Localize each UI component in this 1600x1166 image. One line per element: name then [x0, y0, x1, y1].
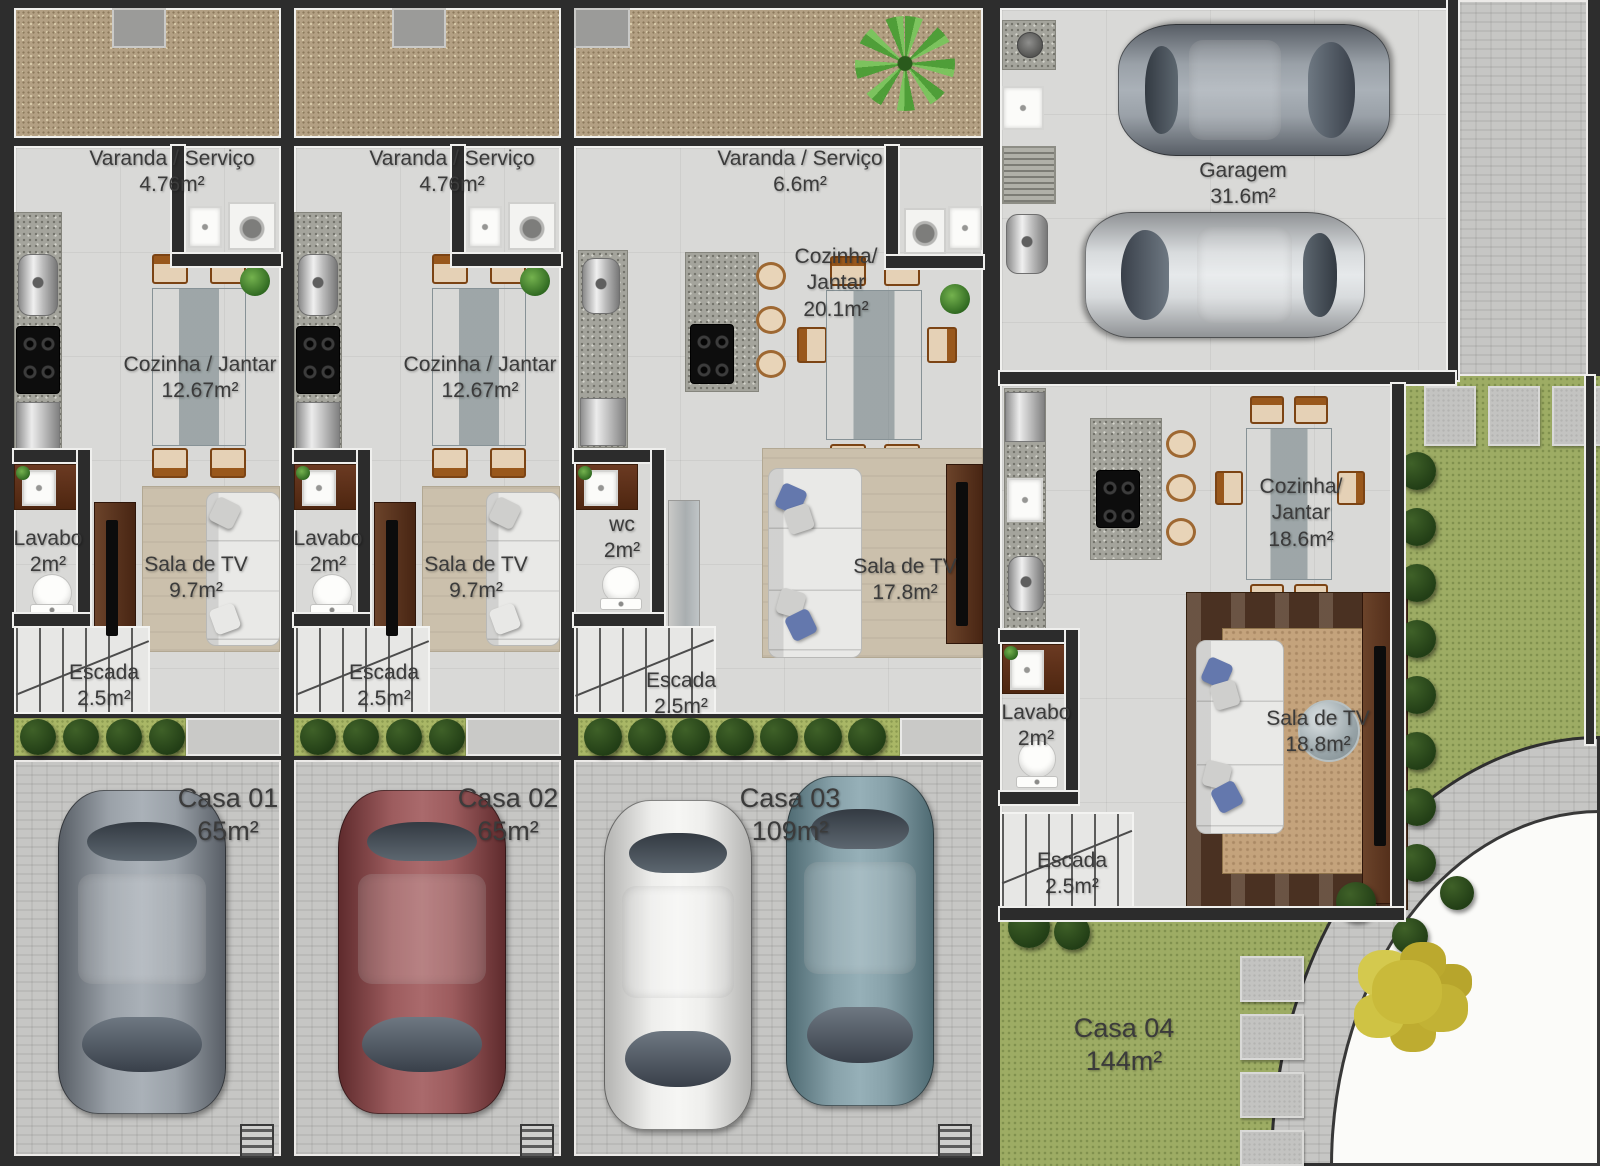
room-name: Varanda / Serviço: [369, 146, 534, 172]
car-windshield: [82, 1017, 203, 1072]
room-name: Lavabo: [294, 526, 363, 552]
wall: [1586, 376, 1594, 744]
car-windshield: [625, 1031, 732, 1087]
laundry-sink: [468, 206, 502, 248]
room-name: Varanda / Serviço: [89, 146, 254, 172]
floor-plan: Varanda / Serviço 4.76m² Cozinha / Janta…: [0, 0, 1600, 1166]
water-heater: [298, 254, 338, 316]
cooktop: [296, 326, 340, 394]
toilet-tank: [600, 598, 642, 610]
room-label-cozinha-casa03: Cozinha/ Jantar 20.1m²: [795, 244, 878, 323]
bush: [584, 718, 622, 756]
room-name: Sala de TV: [424, 552, 528, 578]
unit-area: 65m²: [178, 815, 279, 848]
wall: [886, 256, 983, 268]
car-rear-glass: [629, 833, 727, 873]
entry-pad: [240, 1124, 274, 1158]
car-casa03-white: [604, 800, 752, 1130]
bush: [1440, 876, 1474, 910]
water-heater: [1006, 214, 1048, 274]
bush: [429, 719, 465, 755]
room-name: Escada: [349, 660, 419, 686]
water-heater: [18, 254, 58, 316]
tv-icon: [106, 520, 118, 636]
bush: [20, 719, 56, 755]
tv-icon: [386, 520, 398, 636]
car-rear-glass: [1145, 46, 1178, 133]
room-area: 2.5m²: [646, 694, 716, 720]
room-name: Escada: [1037, 848, 1107, 874]
stool: [756, 306, 786, 334]
room-label-varanda-casa01: Varanda / Serviço 4.76m²: [89, 146, 254, 199]
washing-machine: [904, 208, 946, 254]
room-area: 4.76m²: [369, 172, 534, 198]
fridge: [296, 402, 340, 456]
unit-label-casa02: Casa 02 65m²: [458, 782, 559, 848]
room-label-escada-casa03: Escada 2.5m²: [646, 668, 716, 721]
walk-pad: [186, 718, 281, 756]
room-name: Varanda / Serviço: [717, 146, 882, 172]
unit-name: Casa 03: [740, 782, 841, 815]
stoop-casa01: [112, 8, 166, 48]
room-area: 9.7m²: [424, 578, 528, 604]
washing-machine: [228, 202, 276, 250]
car-rotated: [1118, 24, 1390, 156]
bush: [106, 719, 142, 755]
room-label-lavabo-casa04: Lavabo 2m²: [1002, 700, 1071, 753]
stoop-casa03: [574, 8, 630, 48]
fridge: [580, 398, 626, 446]
water-heater: [582, 258, 620, 314]
car-roof: [358, 874, 486, 984]
room-label-wc-casa03: wc 2m²: [604, 512, 640, 565]
room-area: 6.6m²: [717, 172, 882, 198]
car-rotated: [1085, 212, 1365, 338]
wall: [294, 614, 370, 626]
room-label-sala-casa02: Sala de TV 9.7m²: [424, 552, 528, 605]
dining-chair: [152, 448, 188, 478]
room-area: 12.67m²: [404, 378, 557, 404]
bush: [760, 718, 798, 756]
room-name: Garagem: [1199, 158, 1287, 184]
unit-area: 65m²: [458, 815, 559, 848]
dining-chair: [797, 327, 827, 363]
car-roof: [622, 886, 734, 998]
room-area: 31.6m²: [1199, 184, 1287, 210]
plant: [240, 266, 270, 296]
stepping-stone: [1240, 956, 1304, 1002]
dining-chair: [1215, 471, 1243, 505]
utility-counter: [1002, 20, 1056, 70]
fridge: [16, 402, 60, 456]
stepping-stone: [1240, 1072, 1304, 1118]
room-area: 2.5m²: [69, 686, 139, 712]
washing-machine: [508, 202, 556, 250]
room-label-lavabo-casa01: Lavabo 2m²: [14, 526, 83, 579]
stepping-stone: [1488, 386, 1540, 446]
dining-chair: [490, 448, 526, 478]
unit-area: 144m²: [1074, 1045, 1175, 1078]
wall: [652, 450, 664, 626]
plant: [16, 466, 30, 480]
room-area: 18.6m²: [1260, 527, 1343, 553]
room-name: Lavabo: [14, 526, 83, 552]
room-label-escada-casa01: Escada 2.5m²: [69, 660, 139, 713]
washing-machine: [1002, 146, 1056, 204]
room-label-sala-casa03: Sala de TV 17.8m²: [853, 554, 957, 607]
unit-area: 109m²: [740, 815, 841, 848]
wall: [172, 254, 281, 266]
bush: [804, 718, 842, 756]
kitchen-sink: [1007, 478, 1043, 522]
room-name: Cozinha/: [1260, 474, 1343, 500]
wall: [886, 146, 898, 268]
walk-pad: [466, 718, 561, 756]
tv-icon: [956, 482, 968, 626]
utility-tub: [1002, 86, 1044, 130]
bush: [848, 718, 886, 756]
room-label-sala-casa01: Sala de TV 9.7m²: [144, 552, 248, 605]
bush: [149, 719, 185, 755]
car-rear-glass: [1303, 233, 1337, 316]
wall: [1000, 372, 1455, 384]
room-name: wc: [604, 512, 640, 538]
wall: [452, 254, 561, 266]
room-label-varanda-casa03: Varanda / Serviço 6.6m²: [717, 146, 882, 199]
room-area: 4.76m²: [89, 172, 254, 198]
cooktop: [690, 324, 734, 384]
car-windshield: [1308, 43, 1354, 138]
bush: [386, 719, 422, 755]
room-name: Sala de TV: [1266, 706, 1370, 732]
room-label-escada-casa04: Escada 2.5m²: [1037, 848, 1107, 901]
plant: [940, 284, 970, 314]
stool: [756, 350, 786, 378]
dining-chair: [1294, 396, 1328, 424]
wall: [1000, 792, 1078, 804]
water-heater: [1008, 556, 1044, 612]
unit-name: Casa 01: [178, 782, 279, 815]
unit-name: Casa 02: [458, 782, 559, 815]
room-name: Sala de TV: [144, 552, 248, 578]
car-roof: [1189, 40, 1281, 140]
entry-pad: [938, 1124, 972, 1158]
room-area: 9.7m²: [144, 578, 248, 604]
stoop-casa02: [392, 8, 446, 48]
laundry-sink: [188, 206, 222, 248]
laundry-sink: [948, 206, 982, 250]
car-windshield: [807, 1007, 914, 1063]
yellow-tree: [1372, 960, 1442, 1024]
plant: [1004, 646, 1018, 660]
stepping-stone: [1240, 1014, 1304, 1060]
tv-icon: [1374, 646, 1386, 846]
garage-car-1: [1118, 24, 1390, 156]
palm-tree: [855, 16, 955, 111]
room-label-cozinha-casa02: Cozinha / Jantar 12.67m²: [404, 352, 557, 405]
wall: [1392, 384, 1404, 920]
room-name: Jantar: [1260, 500, 1343, 526]
plant: [578, 466, 592, 480]
bush: [300, 719, 336, 755]
room-label-lavabo-casa02: Lavabo 2m²: [294, 526, 363, 579]
plant: [296, 466, 310, 480]
entry-pad: [520, 1124, 554, 1158]
dining-chair: [432, 448, 468, 478]
cooktop: [1096, 470, 1140, 528]
room-name: Cozinha/: [795, 244, 878, 270]
unit-label-casa04: Casa 04 144m²: [1074, 1012, 1175, 1078]
sidewalk-right: [1458, 0, 1588, 376]
wall: [14, 614, 90, 626]
bush: [63, 719, 99, 755]
bush: [628, 718, 666, 756]
car-roof: [804, 862, 916, 974]
toilet-tank: [1016, 776, 1058, 788]
wall: [1448, 0, 1458, 380]
unit-label-casa03: Casa 03 109m²: [740, 782, 841, 848]
garage-car-2: [1085, 212, 1365, 338]
dining-chair: [1250, 396, 1284, 424]
stool: [756, 262, 786, 290]
room-area: 2m²: [604, 538, 640, 564]
stool: [1166, 430, 1196, 458]
room-name: Jantar: [795, 270, 878, 296]
utility-basin: [1017, 32, 1043, 58]
stepping-stone: [1424, 386, 1476, 446]
cooktop: [16, 326, 60, 394]
room-label-varanda-casa02: Varanda / Serviço 4.76m²: [369, 146, 534, 199]
room-area: 2m²: [14, 552, 83, 578]
dining-chair: [210, 448, 246, 478]
room-area: 17.8m²: [853, 580, 957, 606]
unit-label-casa01: Casa 01 65m²: [178, 782, 279, 848]
wall: [1000, 908, 1404, 920]
bush: [716, 718, 754, 756]
room-area: 12.67m²: [124, 378, 277, 404]
room-name: Lavabo: [1002, 700, 1071, 726]
car-windshield: [1121, 230, 1169, 321]
room-label-cozinha-casa01: Cozinha / Jantar 12.67m²: [124, 352, 277, 405]
bush: [343, 719, 379, 755]
room-label-cozinha-casa04: Cozinha/ Jantar 18.6m²: [1260, 474, 1343, 553]
stool: [1166, 518, 1196, 546]
room-label-garagem-casa04: Garagem 31.6m²: [1199, 158, 1287, 211]
room-area: 2.5m²: [1037, 874, 1107, 900]
room-name: Cozinha / Jantar: [404, 352, 557, 378]
unit-name: Casa 04: [1074, 1012, 1175, 1045]
room-area: 20.1m²: [795, 297, 878, 323]
room-name: Escada: [69, 660, 139, 686]
car-roof: [1197, 227, 1292, 323]
bush: [1392, 918, 1428, 954]
room-label-escada-casa02: Escada 2.5m²: [349, 660, 419, 713]
dining-chair: [927, 327, 957, 363]
wall: [574, 450, 664, 462]
stepping-stone: [1240, 1130, 1304, 1166]
room-area: 2m²: [294, 552, 363, 578]
plant: [520, 266, 550, 296]
fridge: [1005, 392, 1045, 442]
room-area: 2m²: [1002, 726, 1071, 752]
stool: [1166, 474, 1196, 502]
bush: [672, 718, 710, 756]
car-windshield: [362, 1017, 483, 1072]
room-name: Cozinha / Jantar: [124, 352, 277, 378]
wall: [574, 614, 664, 626]
room-area: 18.8m²: [1266, 732, 1370, 758]
room-name: Sala de TV: [853, 554, 957, 580]
room-name: Escada: [646, 668, 716, 694]
room-area: 2.5m²: [349, 686, 419, 712]
car-roof: [78, 874, 206, 984]
room-label-sala-casa04: Sala de TV 18.8m²: [1266, 706, 1370, 759]
walk-pad: [900, 718, 983, 756]
